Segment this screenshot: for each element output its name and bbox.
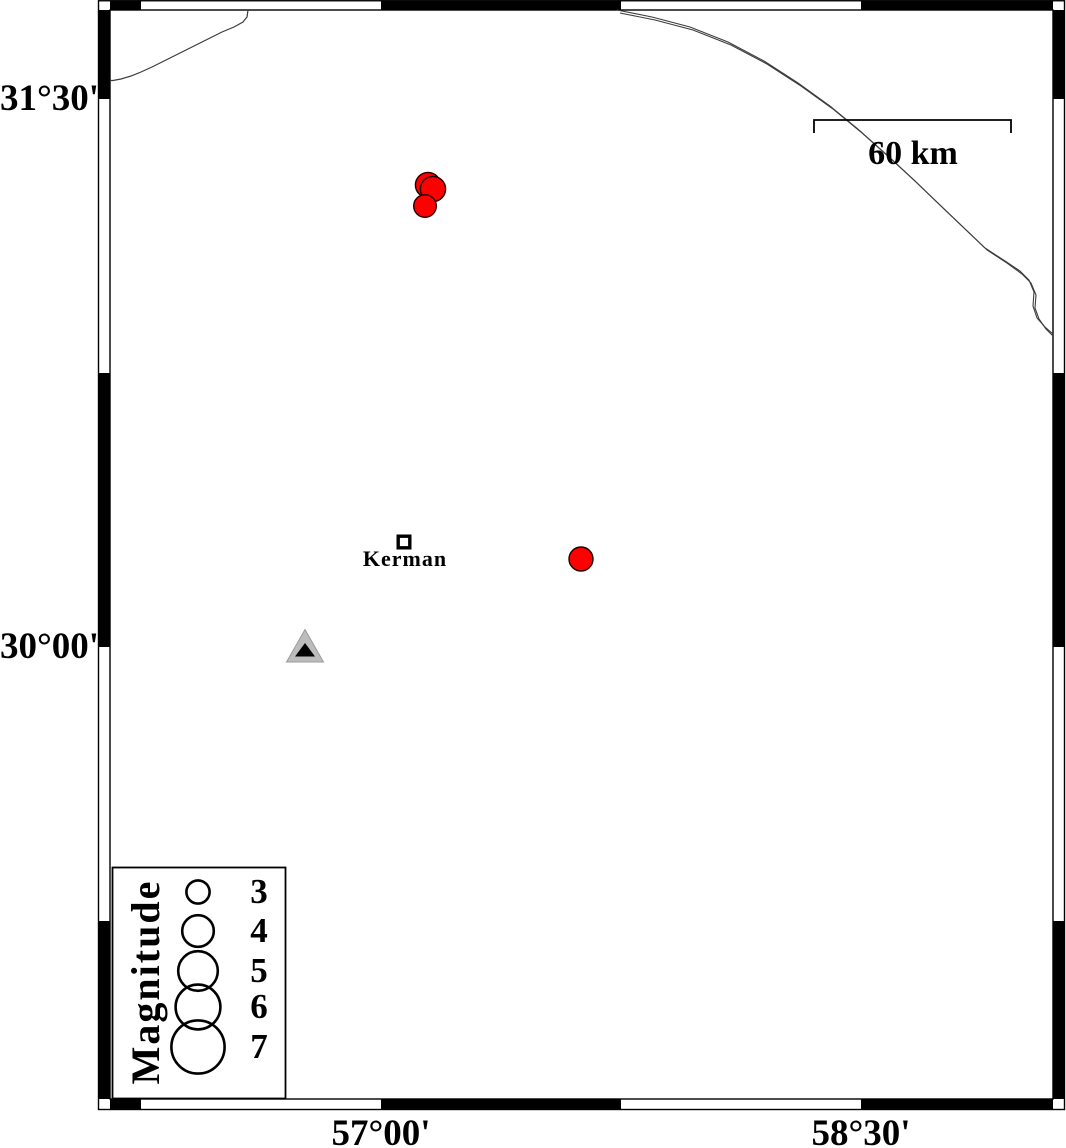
province-boundary-line bbox=[620, 13, 1053, 336]
lat-tick-label: 30°00' bbox=[0, 625, 88, 669]
province-boundary-line bbox=[110, 10, 248, 81]
scale-bar-label: 60 km bbox=[833, 135, 993, 173]
station-triangle bbox=[287, 630, 324, 663]
earthquake-markers bbox=[414, 172, 593, 571]
frame-band-bottom bbox=[381, 1099, 621, 1110]
frame-band-right bbox=[1053, 10, 1065, 99]
lon-tick-label: 58°30' bbox=[781, 1112, 941, 1148]
frame-band-right bbox=[1053, 921, 1065, 1099]
legend-magnitude-value: 4 bbox=[229, 910, 289, 952]
lon-tick-label: 57°00' bbox=[301, 1112, 461, 1148]
frame-band-left bbox=[99, 921, 111, 1099]
earthquake-marker bbox=[414, 195, 437, 218]
boundary-lines bbox=[110, 10, 1053, 336]
scale-bar bbox=[814, 120, 1011, 133]
frame-band-left bbox=[99, 10, 111, 99]
city-label: Kerman bbox=[345, 546, 465, 572]
scale-bar-bracket bbox=[814, 120, 1011, 133]
frame-band-bottom bbox=[861, 1099, 1053, 1110]
frame-band-top bbox=[381, 1, 621, 10]
seismicity-map-page: 31°30' 30°00' 57°00' 58°30' 60 km Kerman… bbox=[0, 0, 1066, 1148]
frame-band-right bbox=[1053, 373, 1065, 647]
legend-magnitude-value: 6 bbox=[229, 986, 289, 1028]
legend-title: Magnitude bbox=[126, 862, 166, 1102]
frame-band-top bbox=[110, 1, 141, 10]
frame-band-left bbox=[99, 373, 111, 647]
frame-band-top bbox=[861, 1, 1053, 10]
earthquake-marker bbox=[569, 547, 593, 571]
lat-tick-label: 31°30' bbox=[0, 77, 88, 121]
legend-magnitude-value: 7 bbox=[229, 1026, 289, 1068]
legend-magnitude-value: 3 bbox=[229, 871, 289, 913]
